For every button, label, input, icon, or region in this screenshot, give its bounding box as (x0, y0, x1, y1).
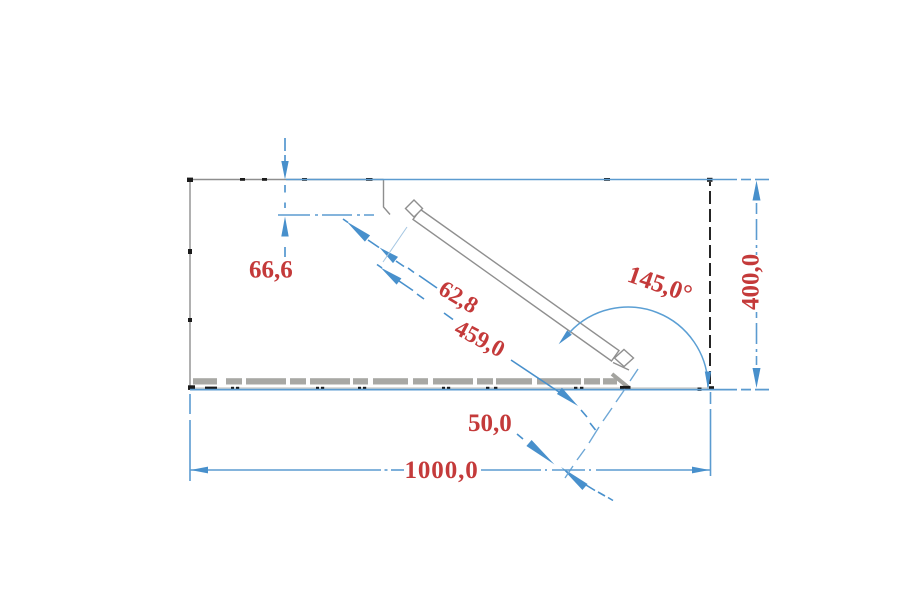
svg-text:50,0: 50,0 (468, 410, 512, 437)
svg-text:1000,0: 1000,0 (405, 457, 479, 484)
svg-text:400,0: 400,0 (738, 254, 765, 310)
svg-text:66,6: 66,6 (249, 257, 293, 284)
